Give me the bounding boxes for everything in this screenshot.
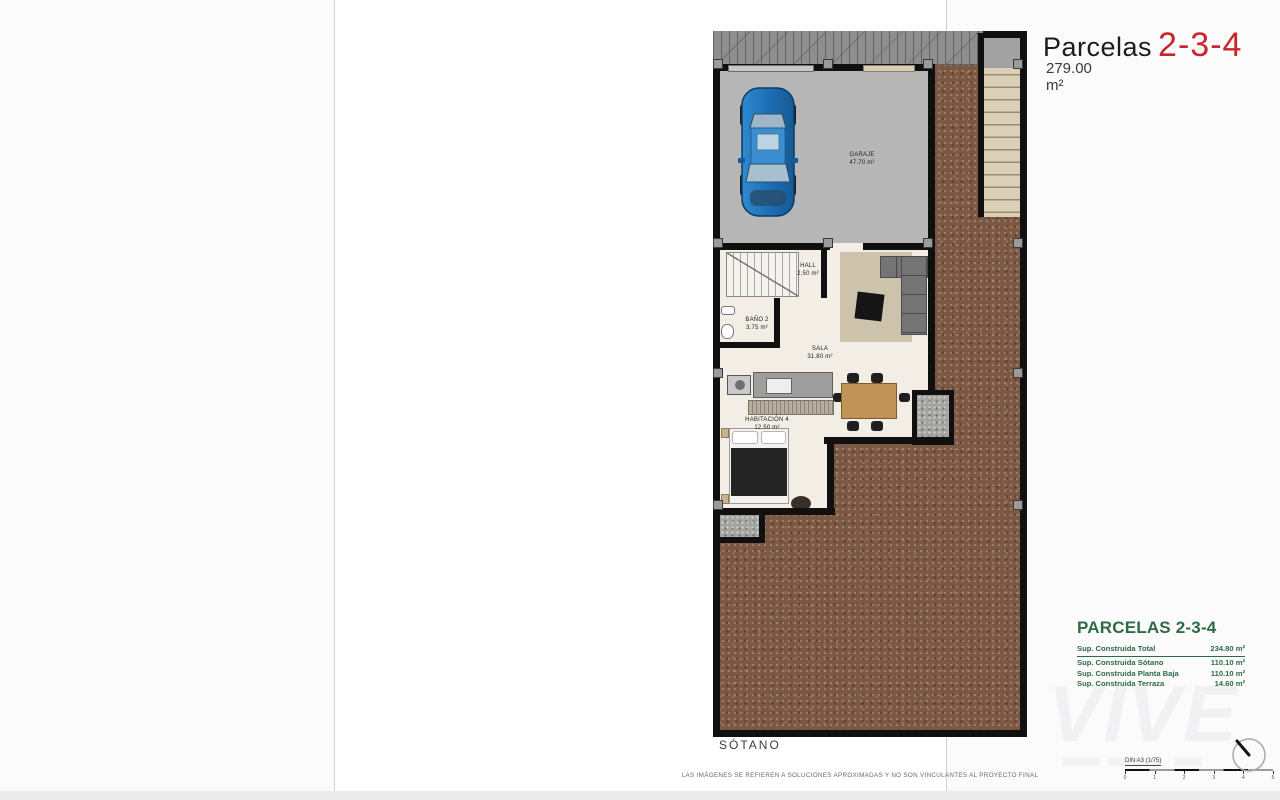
nightstand <box>721 428 729 438</box>
room-label-habitacion4: HABITACIÓN 412.50 m² <box>737 417 797 433</box>
car-top-view <box>738 86 798 218</box>
column <box>1013 500 1023 510</box>
chair <box>871 373 883 383</box>
sofa <box>901 256 927 335</box>
door-opening <box>830 243 863 250</box>
dining-table <box>841 383 897 419</box>
gravel-square <box>720 515 765 543</box>
room-label-hall: HALL2.50 m² <box>790 263 826 279</box>
toilet <box>721 324 734 339</box>
column <box>1013 59 1023 69</box>
room-label-sala: SALA31.80 m² <box>793 346 847 362</box>
coffee-table <box>854 291 884 321</box>
room-label-garaje: GARAJE47.70 m² <box>832 152 892 168</box>
summary-title: PARCELAS 2-3-4 <box>1077 618 1245 638</box>
parcel-area-value: 279.00 m² <box>1046 60 1092 94</box>
chair <box>847 373 859 383</box>
column <box>713 368 723 378</box>
chair <box>847 421 859 431</box>
interior-staircase <box>726 252 799 297</box>
wall <box>718 508 835 515</box>
column <box>713 500 723 510</box>
summary-row: Sup. Construida Sótano110.10 m² <box>1077 658 1245 669</box>
title-parcel-number: 2-3-4 <box>1158 26 1242 64</box>
wall <box>928 64 935 395</box>
plan-sheet: Parcelas2-3-4 279.00 m² <box>334 0 947 791</box>
north-compass-icon <box>1228 734 1270 776</box>
wall <box>824 437 953 444</box>
wall <box>718 342 780 348</box>
column <box>1013 238 1023 248</box>
wall <box>978 33 984 217</box>
column <box>1013 368 1023 378</box>
kitchen-sink <box>766 378 792 394</box>
summary-row: Sup. Construida Total234.80 m² <box>1077 644 1245 657</box>
column <box>823 238 833 248</box>
kitchen-cabinet <box>748 400 834 415</box>
column <box>713 238 723 248</box>
disclaimer-text: LAS IMÁGENES SE REFIEREN A SOLUCIONES AP… <box>665 772 1055 779</box>
chair <box>899 393 910 402</box>
watermark-logo: VIVE <box>1048 668 1238 760</box>
bed <box>729 428 789 504</box>
column <box>923 59 933 69</box>
wall <box>827 443 834 515</box>
watermark-tagline <box>1062 758 1212 766</box>
column <box>823 59 833 69</box>
driveway-hatch <box>713 31 983 65</box>
title-prefix: Parcelas <box>1043 32 1152 62</box>
room-label-bano2: BAÑO 23.75 m² <box>737 317 777 333</box>
sink <box>721 306 735 315</box>
floor-name: SÓTANO <box>719 738 781 752</box>
washing-machine <box>727 375 751 395</box>
chair <box>871 421 883 431</box>
column <box>923 238 933 248</box>
garage-door <box>728 65 814 72</box>
kitchen-counter <box>753 372 833 398</box>
entry-door <box>863 65 915 72</box>
column <box>713 59 723 69</box>
backdrop-strip <box>0 791 1280 800</box>
